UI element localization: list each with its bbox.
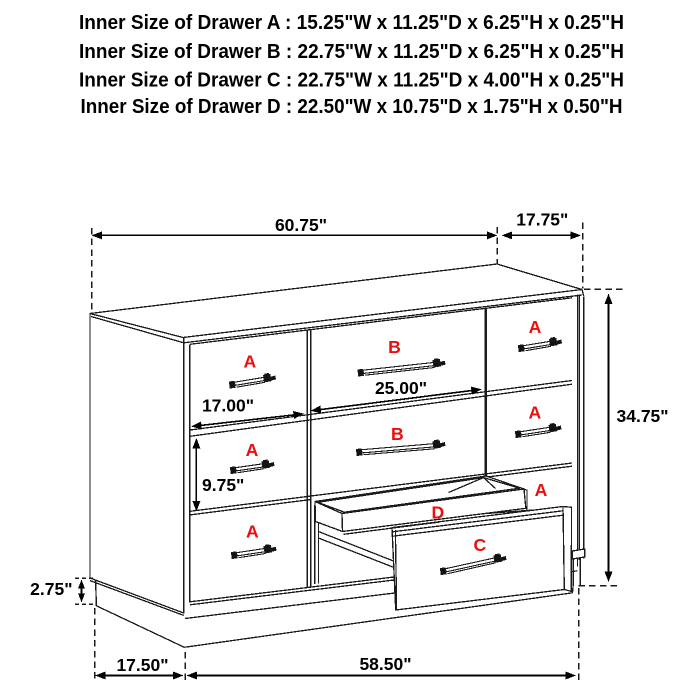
svg-text:17.75": 17.75" bbox=[516, 210, 568, 230]
svg-text:A: A bbox=[528, 402, 541, 422]
svg-text:9.75": 9.75" bbox=[202, 475, 244, 495]
svg-text:A: A bbox=[246, 440, 259, 460]
svg-text:17.50": 17.50" bbox=[116, 655, 168, 675]
svg-text:58.50": 58.50" bbox=[359, 654, 411, 674]
svg-text:25.00": 25.00" bbox=[375, 378, 427, 398]
svg-text:34.75": 34.75" bbox=[617, 406, 669, 426]
svg-text:D: D bbox=[431, 502, 444, 522]
svg-text:A: A bbox=[244, 351, 257, 371]
svg-text:Inner Size of Drawer C : 22.75: Inner Size of Drawer C : 22.75"W x 11.25… bbox=[79, 69, 624, 91]
svg-text:Inner Size of Drawer A : 15.25: Inner Size of Drawer A : 15.25"W x 11.25… bbox=[79, 12, 624, 34]
svg-text:A: A bbox=[246, 522, 259, 542]
svg-text:A: A bbox=[535, 480, 548, 500]
svg-text:Inner Size of Drawer D : 22.5: Inner Size of Drawer D : 22.50"W x 10.75… bbox=[81, 96, 623, 118]
svg-text:C: C bbox=[473, 535, 486, 555]
svg-text:60.75": 60.75" bbox=[275, 215, 327, 235]
svg-text:B: B bbox=[391, 424, 404, 444]
svg-text:A: A bbox=[529, 317, 542, 337]
svg-text:B: B bbox=[388, 337, 401, 357]
svg-text:Inner Size of Drawer B : 22.75: Inner Size of Drawer B : 22.75"W x 11.25… bbox=[79, 41, 624, 63]
svg-text:17.00": 17.00" bbox=[202, 396, 254, 416]
svg-text:2.75": 2.75" bbox=[30, 579, 72, 599]
